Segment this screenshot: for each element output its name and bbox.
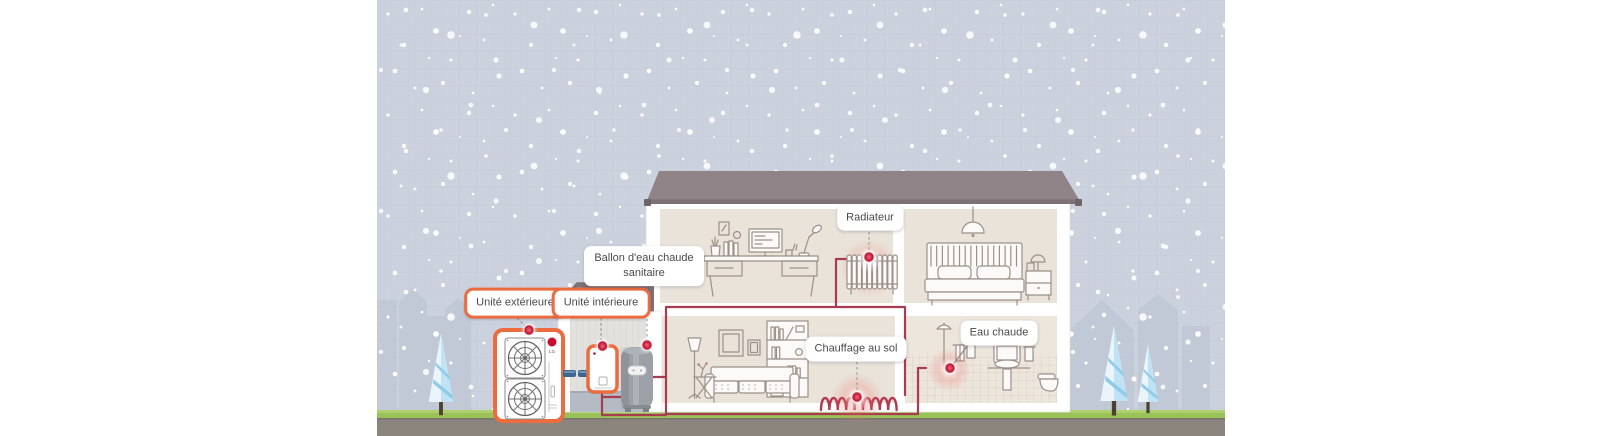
desk-books-icon (724, 241, 738, 256)
callout-radiator: Radiateur (837, 206, 903, 231)
fan-icon (505, 379, 545, 419)
fan-icon (505, 338, 545, 378)
callout-outdoor-unit: Unité extérieure (464, 288, 566, 319)
house-roof (644, 171, 1082, 206)
heat-indicator-bath-icon (941, 359, 959, 377)
callout-indoor-unit: Unité intérieure (552, 288, 651, 319)
heat-indicator-tank-icon (638, 336, 656, 354)
callout-dhw-tank: Ballon d'eau chaude sanitaire (584, 246, 704, 286)
bed-icon (925, 243, 1024, 305)
lg-logo-icon (548, 338, 557, 347)
callout-hot-water: Eau chaude (961, 321, 1038, 346)
callout-floor-heating: Chauffage au sol (806, 337, 907, 362)
lg-logo-text: LG (549, 349, 556, 354)
heat-indicator-outdoor-icon (520, 321, 538, 339)
water-tank (621, 347, 653, 412)
desktop-monitor-icon (749, 229, 782, 256)
heat-indicator-radiator-icon (860, 248, 878, 266)
illustration-canvas: LG (377, 0, 1225, 436)
winter-heating-illustration: LG (0, 0, 1600, 436)
outdoor-unit: LG (495, 330, 563, 421)
bathroom-tiles (905, 354, 1057, 403)
refrigerant-pipe (563, 370, 588, 377)
heat-indicator-floor-icon (848, 388, 866, 406)
heat-indicator-indoor-icon (594, 337, 612, 355)
